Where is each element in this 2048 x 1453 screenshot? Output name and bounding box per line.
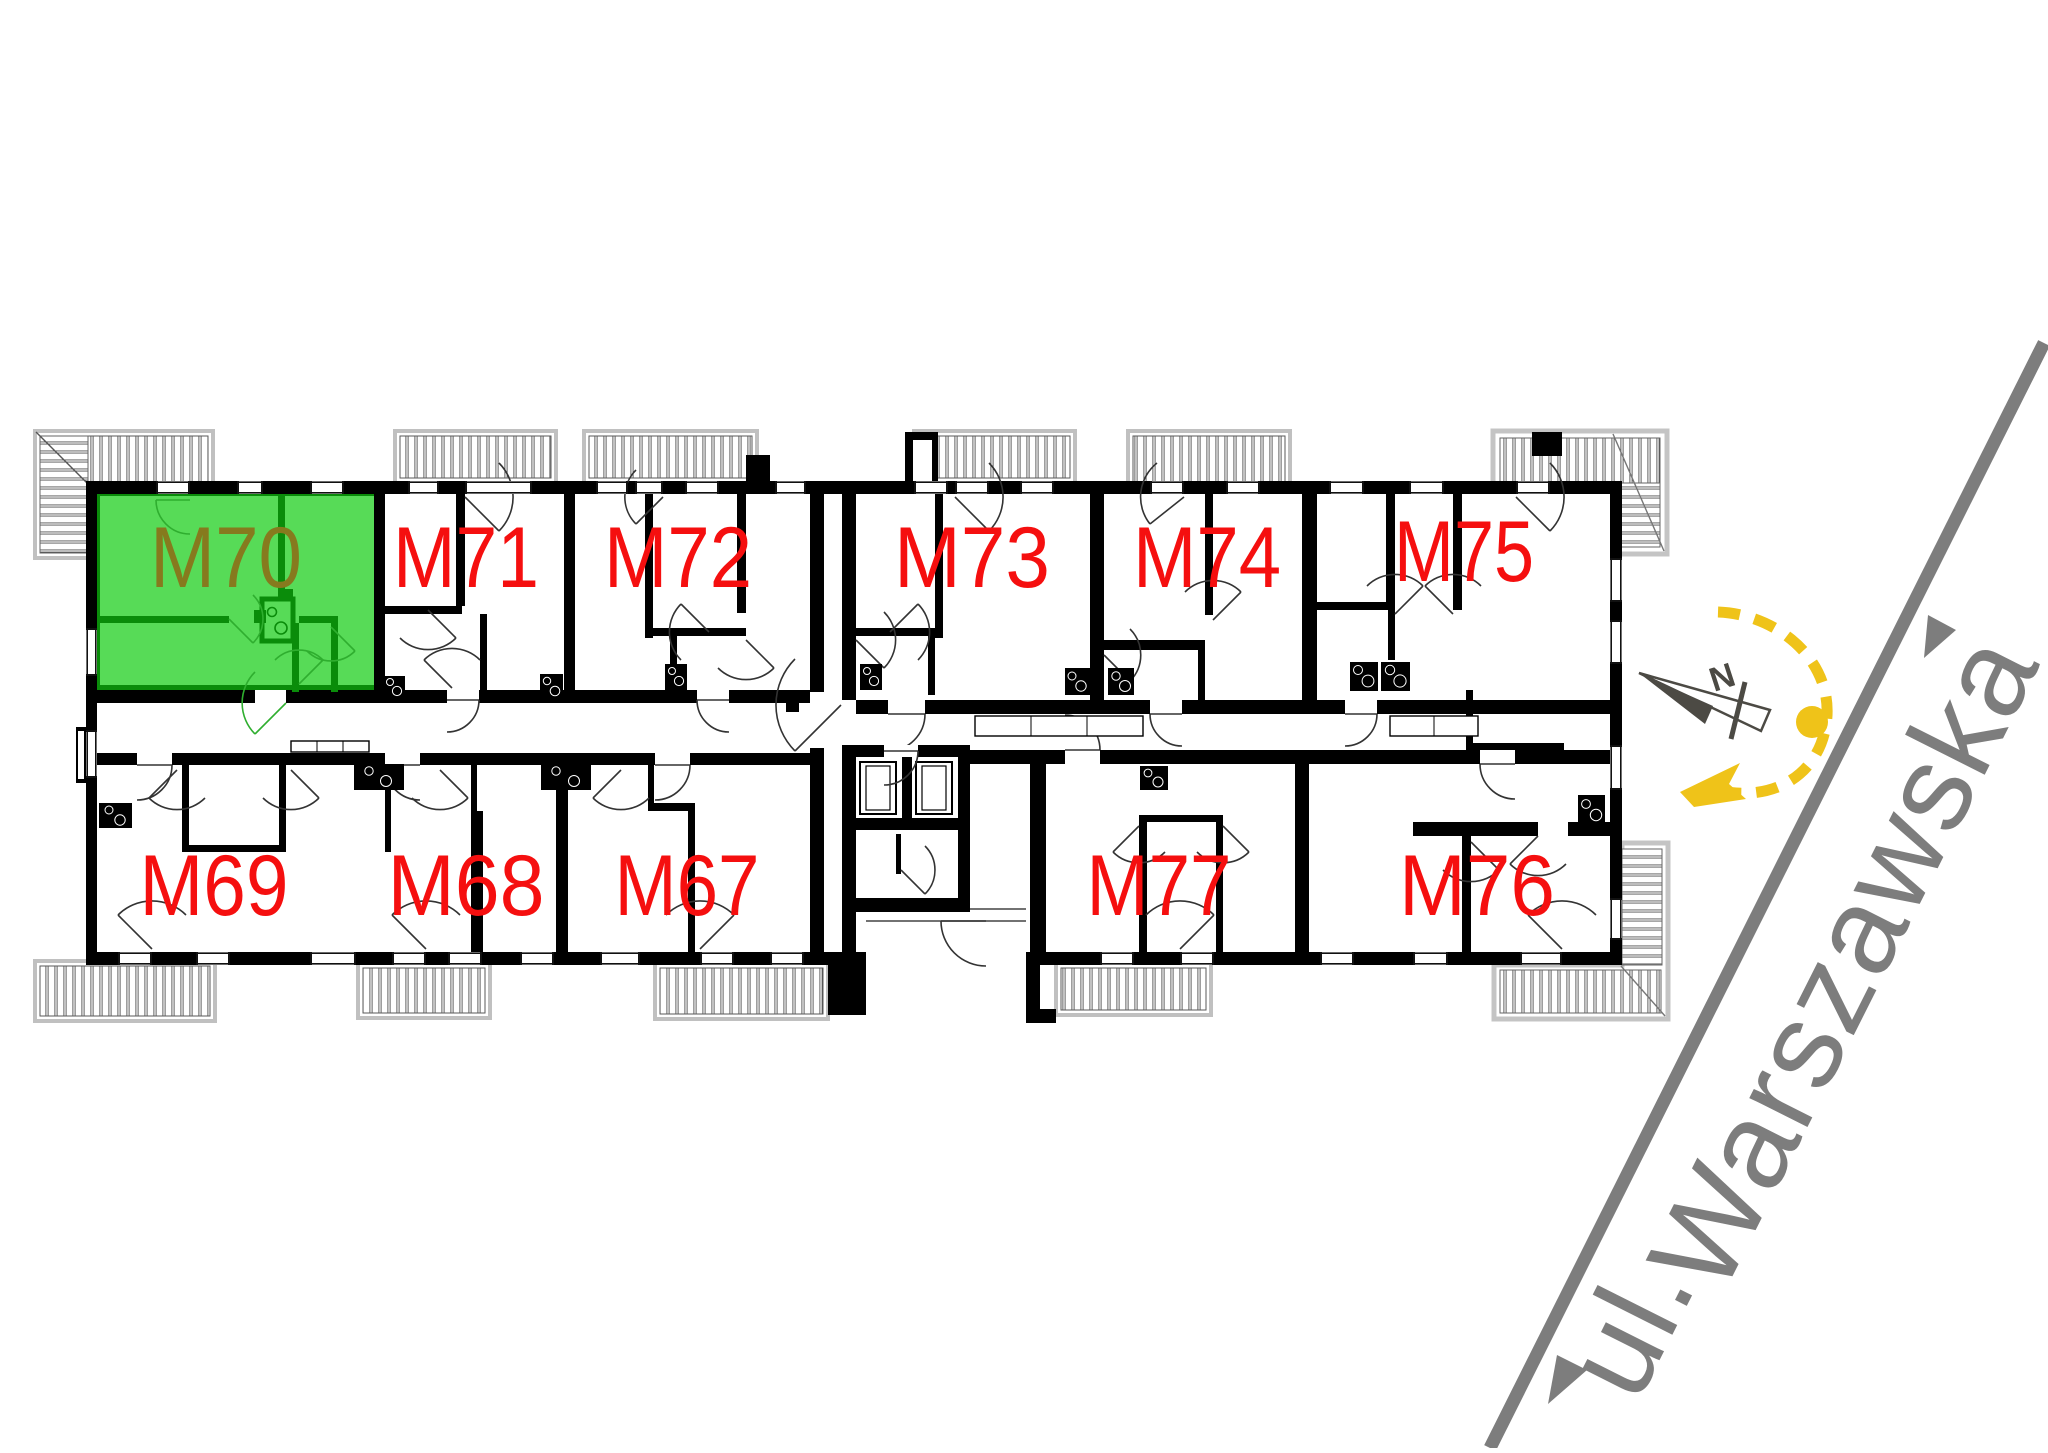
svg-text:M73: M73 [894, 510, 1050, 606]
svg-text:M72: M72 [604, 510, 752, 606]
svg-text:M67: M67 [615, 838, 760, 934]
svg-text:M75: M75 [1394, 504, 1534, 600]
svg-text:M69: M69 [140, 838, 289, 934]
svg-text:M74: M74 [1133, 510, 1281, 606]
svg-text:M71: M71 [393, 510, 539, 606]
svg-text:M68: M68 [388, 838, 545, 934]
svg-text:M76: M76 [1399, 838, 1555, 934]
svg-text:M77: M77 [1087, 838, 1232, 934]
svg-text:M70: M70 [150, 510, 302, 606]
